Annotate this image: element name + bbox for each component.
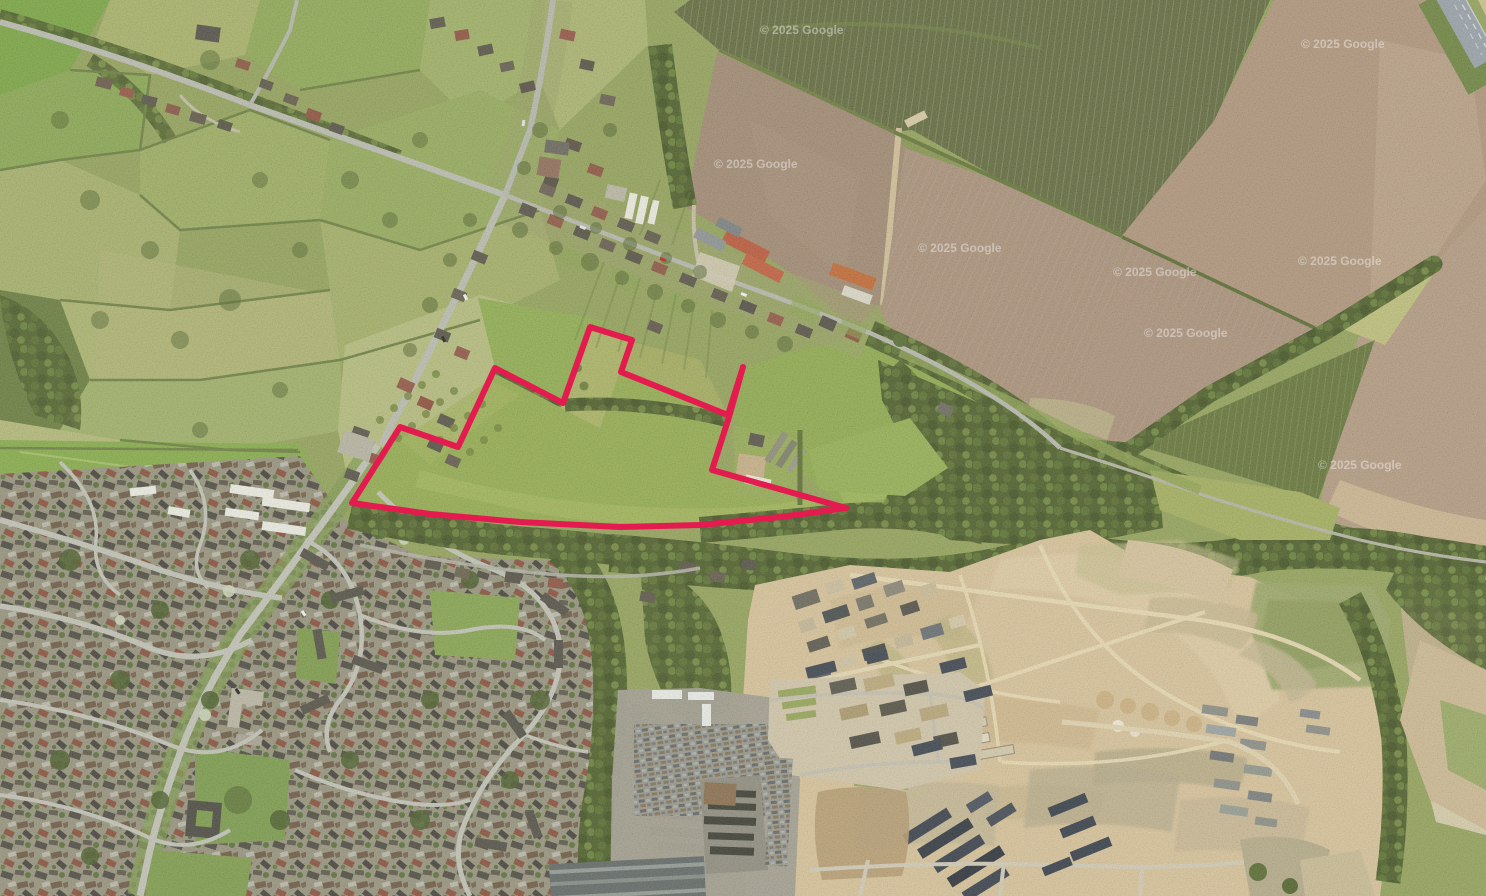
svg-text:© 2025 Google: © 2025 Google — [918, 241, 1002, 255]
svg-text:© 2025 Google: © 2025 Google — [1144, 326, 1228, 340]
svg-text:© 2025 Google: © 2025 Google — [714, 157, 798, 171]
svg-text:© 2025 Google: © 2025 Google — [1298, 254, 1382, 268]
svg-text:© 2025 Google: © 2025 Google — [1113, 265, 1197, 279]
svg-text:© 2025 Google: © 2025 Google — [760, 23, 844, 37]
svg-text:© 2025 Google: © 2025 Google — [1318, 458, 1402, 472]
svg-text:© 2025 Google: © 2025 Google — [1301, 37, 1385, 51]
